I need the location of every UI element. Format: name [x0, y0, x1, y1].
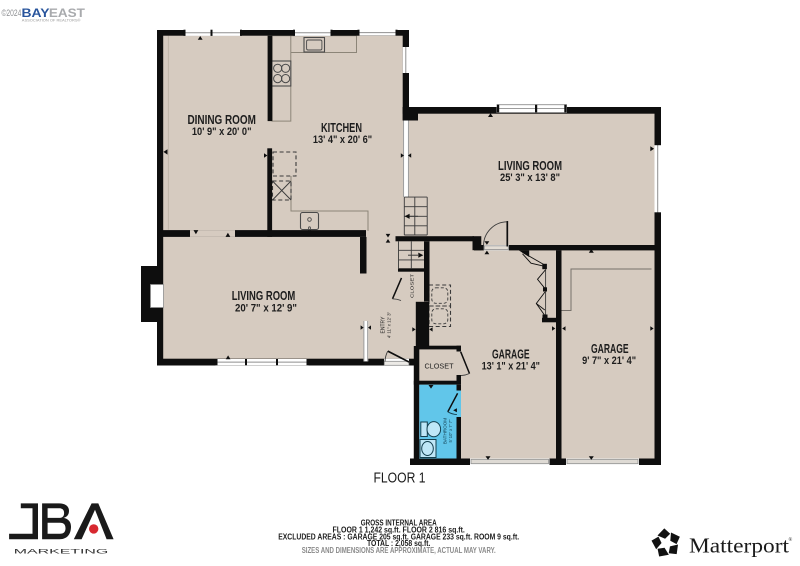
svg-text:FLOOR 1: FLOOR 1: [374, 470, 426, 487]
svg-text:4' 11" x 12' 3": 4' 11" x 12' 3": [386, 311, 391, 338]
svg-text:Matterport: Matterport: [689, 534, 789, 558]
svg-text:CLOSET: CLOSET: [410, 274, 416, 298]
svg-text:®: ®: [789, 537, 793, 543]
svg-text:KITCHEN: KITCHEN: [321, 121, 362, 135]
svg-text:CLOSET: CLOSET: [425, 361, 454, 370]
svg-text:MARKETING: MARKETING: [14, 548, 109, 555]
svg-text:13' 4" x 20' 6": 13' 4" x 20' 6": [313, 134, 372, 146]
svg-text:20' 7" x 12' 9": 20' 7" x 12' 9": [235, 303, 297, 315]
svg-text:13' 1" x 21' 4": 13' 1" x 21' 4": [482, 361, 540, 373]
svg-text:10' 9" x 20' 0": 10' 9" x 20' 0": [192, 126, 252, 138]
svg-text:5' 10" x 7' 7": 5' 10" x 7' 7": [448, 419, 453, 442]
svg-text:©2024: ©2024: [2, 8, 22, 18]
svg-text:GARAGE: GARAGE: [492, 348, 530, 362]
svg-text:DINING ROOM: DINING ROOM: [187, 113, 256, 127]
svg-text:LIVING ROOM: LIVING ROOM: [232, 289, 296, 303]
svg-text:SIZES AND DIMENSIONS ARE APPRO: SIZES AND DIMENSIONS ARE APPROXIMATE, AC…: [302, 546, 496, 555]
svg-text:LIVING ROOM: LIVING ROOM: [498, 159, 562, 173]
svg-text:BATHROOM: BATHROOM: [443, 418, 448, 444]
svg-text:9' 7" x 21' 4": 9' 7" x 21' 4": [582, 355, 636, 367]
svg-text:25' 3" x 13' 8": 25' 3" x 13' 8": [500, 172, 560, 184]
svg-text:ASSOCIATION OF REALTORS®: ASSOCIATION OF REALTORS®: [22, 17, 81, 22]
svg-text:GARAGE: GARAGE: [591, 342, 629, 356]
